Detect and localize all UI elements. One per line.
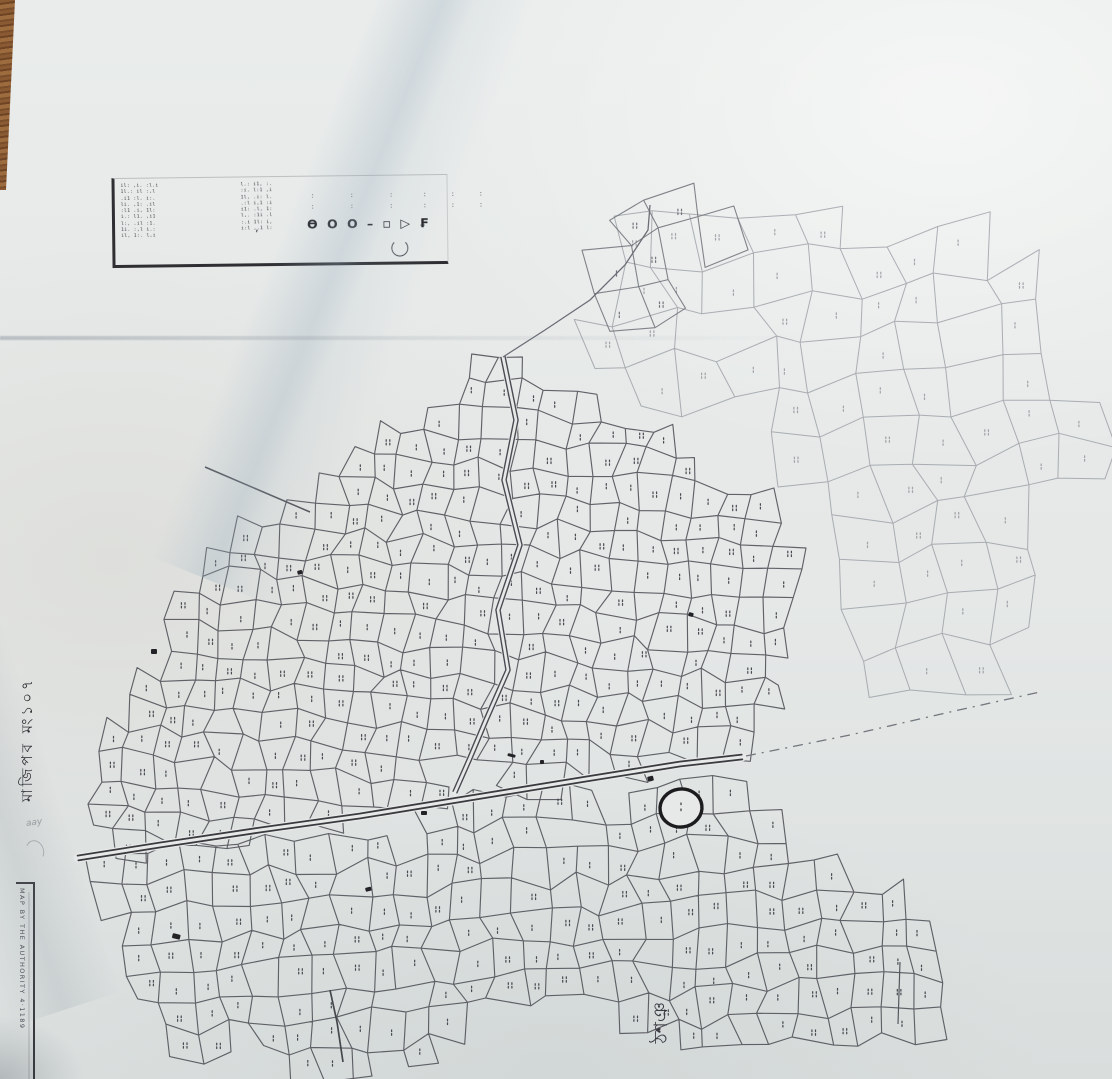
central-road bbox=[453, 357, 522, 793]
mouza-label-vertical: মাজিপব মং১০৭ bbox=[16, 677, 41, 802]
registry-stamp: il: ,i. :l.i1l.: il :,l.i1 :l. i:.li. ,1… bbox=[111, 174, 448, 268]
stamp-text-column-left: il: ,i. :l.i1l.: il :,l.i1 :l. i:.li. ,1… bbox=[121, 183, 160, 240]
pond bbox=[658, 786, 705, 829]
stamp-comma-mark: , bbox=[255, 221, 259, 234]
cadastral-map-drawing bbox=[0, 0, 1112, 1079]
parcels-south bbox=[85, 776, 947, 1079]
photo-of-cadastral-map: { "colors": { "paper": "#e6e9e8", "ink_d… bbox=[0, 0, 1112, 1079]
parcels-central bbox=[88, 354, 806, 863]
parcels-northeast bbox=[574, 206, 1112, 697]
parcels-northeast-dark bbox=[582, 183, 748, 331]
main-road bbox=[78, 755, 743, 861]
sheet-authority-label: MAP BY THE AUTHORITY 4·1189 bbox=[18, 888, 26, 1029]
stamp-ink-circle bbox=[391, 239, 408, 256]
stamp-serial-code: Ɵ O O – ▫ ▷ ₣ bbox=[307, 215, 431, 232]
village-label-bottom: ঠশঞ bbox=[648, 1002, 674, 1043]
stamp-dot-grid: : : : : : :: : : : : : bbox=[311, 188, 485, 212]
